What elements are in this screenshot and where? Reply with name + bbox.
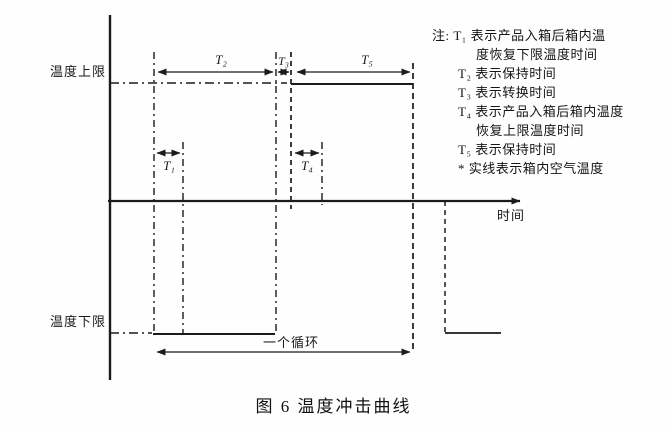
note-line: T₅ 表示保持时间	[432, 140, 660, 159]
note-line: T₂ 表示保持时间	[432, 64, 660, 83]
t5-label: T₅	[353, 53, 381, 67]
notes-block: 注: T₁ 表示产品入箱后箱内温 度恢复下限温度时间 T₂ 表示保持时间 T₃ …	[432, 26, 660, 178]
lower-limit-label: 温度下限	[42, 315, 106, 329]
cycle-label: 一个循环	[263, 336, 319, 350]
note-line: T₄ 表示产品入箱后箱内温度	[432, 102, 660, 121]
note-line: * 实线表示箱内空气温度	[432, 159, 660, 178]
note-line: 恢复上限温度时间	[432, 121, 660, 140]
t1-label: T₁	[155, 159, 183, 173]
t3-label: T₃	[276, 54, 291, 68]
figure-page: 温度上限 温度下限 时间 T₂ T₃ T₅ T₁ T₄ 一个循环 注: T₁ 表…	[0, 0, 667, 429]
upper-limit-label: 温度上限	[42, 65, 106, 79]
note-line: 注: T₁ 表示产品入箱后箱内温	[432, 26, 660, 45]
note-line: T₃ 表示转换时间	[432, 83, 660, 102]
figure-caption: 图 6 温度冲击曲线	[0, 392, 667, 417]
time-axis-label: 时间	[497, 209, 525, 223]
t4-label: T₄	[293, 159, 321, 173]
t2-label: T₂	[207, 53, 235, 67]
note-line: 度恢复下限温度时间	[432, 45, 660, 64]
